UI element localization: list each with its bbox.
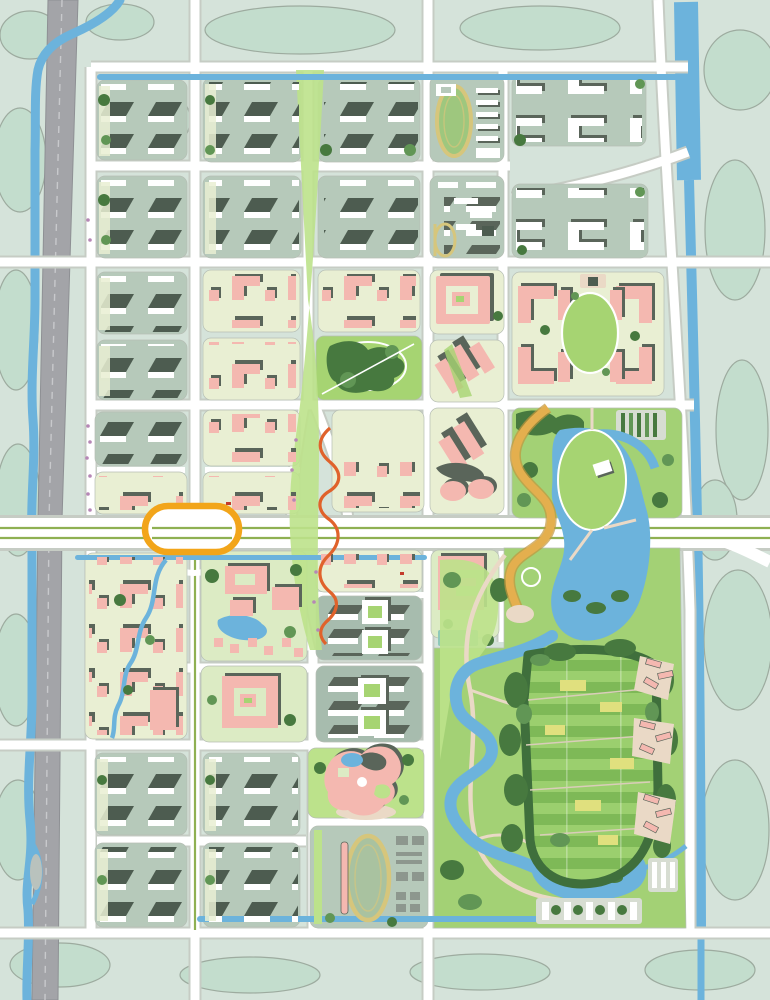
- boulevard-marker-red: [226, 502, 231, 505]
- block-contents: [75, 74, 686, 927]
- s-road-plaza: [506, 605, 534, 623]
- culture-pond: [341, 753, 363, 767]
- river-island: [30, 854, 42, 890]
- master-plan-screenshot: [0, 0, 770, 1000]
- courtyard-spiral-building: [436, 273, 503, 324]
- master-plan-map: [0, 0, 770, 1000]
- park-parking-east: [648, 858, 678, 892]
- marker-red: [400, 572, 404, 575]
- pink-house-clusters: [632, 656, 676, 844]
- park-parking-south: [536, 898, 642, 924]
- grandstand: [341, 842, 348, 914]
